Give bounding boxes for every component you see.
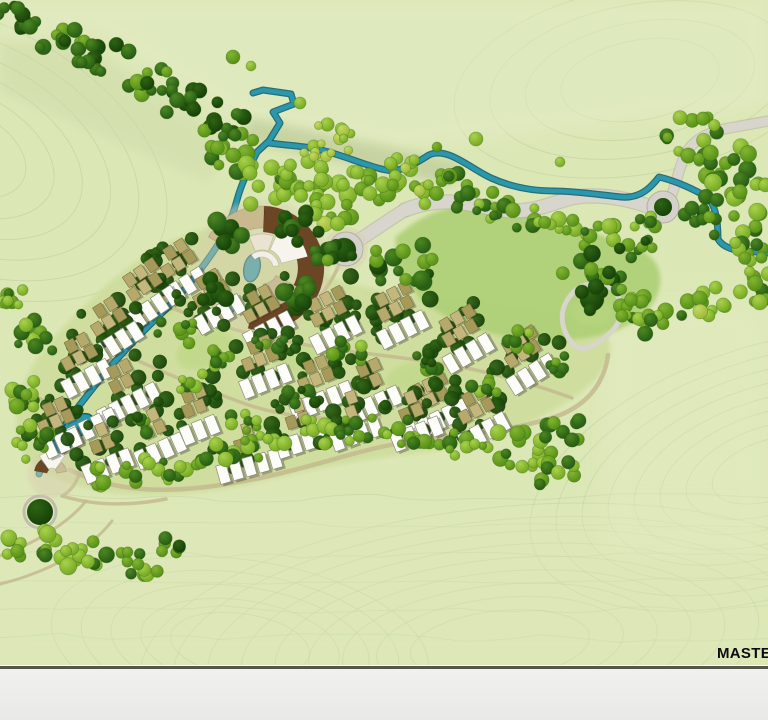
plan-title: MASTER PLAN [717, 645, 768, 662]
site-plan-map [0, 0, 768, 665]
master-plan-page: MASTER PLAN [0, 0, 768, 720]
grove-circle [24, 496, 56, 528]
footer-bar [0, 669, 768, 720]
